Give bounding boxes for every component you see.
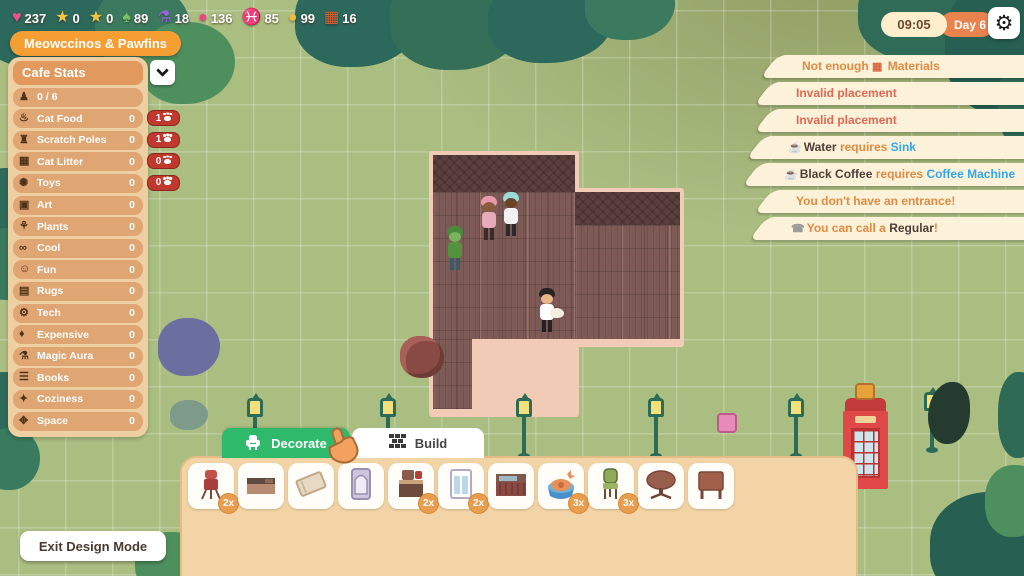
palette-item-square-table[interactable] — [688, 463, 734, 509]
character-green-customer[interactable] — [444, 226, 466, 272]
booth-sign — [855, 416, 876, 423]
notification-text-part: Materials — [884, 59, 939, 73]
cool-icon: ∞ — [19, 243, 34, 254]
stat-value: 0 — [129, 177, 135, 189]
chair-icon: ♟ — [19, 92, 34, 103]
item-count-badge: 2x — [418, 493, 439, 514]
lamppost[interactable] — [514, 398, 534, 459]
resource-coin: ●99 — [288, 10, 315, 26]
magic-aura-icon: ⚗ — [19, 351, 34, 362]
stat-row-scratch-poles[interactable]: ♜Scratch Poles01 — [13, 131, 143, 150]
resource-bar: ♥237★0★0♠89⚗18●136♓85●99▦16 — [12, 10, 357, 26]
resource-materials: ▦16 — [324, 10, 357, 26]
chevron-down-icon — [156, 64, 169, 77]
stat-value: 0 — [129, 415, 135, 427]
resource-value: 0 — [73, 11, 80, 26]
stat-label: Expensive — [37, 329, 89, 341]
stat-label: Cat Food — [37, 113, 83, 125]
stat-value: 0 — [129, 199, 135, 211]
resource-value: 99 — [301, 11, 315, 26]
notification-text: ☕Water requires Sink — [754, 136, 1024, 154]
palette-item-pet-bowl[interactable]: 3x — [538, 463, 584, 509]
lamp-base — [926, 447, 938, 453]
notification-text: Invalid placement — [762, 82, 1024, 100]
notification-text: You don't have an entrance! — [762, 190, 1024, 208]
palette-item-coffee-machine[interactable]: 2x — [388, 463, 434, 509]
stat-value: 0 — [129, 329, 135, 341]
stat-value: 0 — [129, 372, 135, 384]
art-icon: ▣ — [19, 200, 34, 211]
stat-row-fun[interactable]: ☺Fun0 — [13, 260, 143, 279]
torso — [504, 208, 518, 224]
stat-label: Scratch Poles — [37, 134, 106, 146]
resource-value: 89 — [134, 11, 148, 26]
space-icon: ✥ — [19, 416, 34, 427]
day-counter: Day 6 — [940, 12, 994, 37]
legs — [490, 228, 494, 240]
notification-text-part: Coffee Machine — [926, 167, 1015, 181]
palette-item-round-table[interactable] — [638, 463, 684, 509]
palette-item-cafe-chair[interactable]: 3x — [588, 463, 634, 509]
character-waiter[interactable] — [536, 288, 558, 334]
furniture-palette: 2x2x2x3x3x — [180, 456, 858, 576]
palette-item-window[interactable]: 2x — [438, 463, 484, 509]
resource-value: 136 — [211, 11, 233, 26]
stat-row-magic-aura[interactable]: ⚗Magic Aura0 — [13, 347, 143, 366]
star-icon: ★ — [55, 10, 69, 26]
lantern-icon — [648, 398, 664, 417]
legs — [512, 224, 516, 236]
expensive-icon: ♦ — [19, 329, 34, 340]
badge-value: 0 — [156, 156, 162, 167]
stat-label: 0 / 6 — [37, 91, 57, 103]
stat-value: 0 — [129, 113, 135, 125]
cafe-stats-title: Cafe Stats — [13, 61, 143, 85]
gear-icon: ⚙ — [995, 11, 1014, 36]
legs — [456, 258, 460, 270]
shop-sign — [855, 383, 875, 400]
booth-roof — [845, 398, 886, 412]
bar-counter-icon — [493, 466, 529, 507]
stat-value: 0 — [129, 350, 135, 362]
resource-leaf: ♠89 — [122, 10, 148, 26]
toys-icon: ✺ — [19, 178, 34, 189]
stat-row-cool[interactable]: ∞Cool0 — [13, 239, 143, 258]
stat-label: Coziness — [37, 393, 83, 405]
chair-icon — [245, 434, 263, 453]
palette-item-bar-counter[interactable] — [488, 463, 534, 509]
star-icon: ★ — [89, 10, 103, 26]
coffee-icon: ☕ — [784, 169, 798, 181]
notification-text: Not enough ▦ Materials — [768, 55, 1024, 73]
clock-time: 09:05 — [881, 12, 947, 37]
lamp-post — [522, 417, 526, 455]
stat-value: 0 — [129, 242, 135, 254]
pink-tile-marker — [717, 413, 737, 433]
paw-icon — [164, 137, 171, 142]
cat-litter-icon: ▦ — [19, 156, 34, 167]
resource-value: 18 — [175, 11, 189, 26]
notification-text-part: ! — [934, 221, 938, 235]
cafe-stats-panel: Cafe Stats ♟0 / 6♨Cat Food01♜Scratch Pol… — [8, 57, 148, 437]
heart-icon: ♥ — [12, 10, 22, 26]
palette-item-water-cooler[interactable]: 2x — [188, 463, 234, 509]
notification-text-part: Invalid placement — [796, 86, 897, 100]
lantern-icon — [516, 398, 532, 417]
stat-value: 0 — [129, 264, 135, 276]
notification-text-part: You don't have an entrance! — [796, 194, 955, 208]
lamppost[interactable] — [786, 398, 806, 459]
stat-label: Tech — [37, 307, 61, 319]
notification-text: ☎You can call a Regular! — [757, 217, 1024, 235]
badge-value: 1 — [156, 113, 162, 124]
round-table-icon — [643, 466, 679, 507]
tree — [985, 465, 1024, 537]
notification-not-enough-materials[interactable]: Not enough ▦ Materials — [768, 55, 1024, 78]
notification-text-part: Not enough — [802, 59, 872, 73]
coin-icon: ● — [288, 10, 298, 26]
badge-value: 0 — [156, 177, 162, 188]
stat-value: 0 — [129, 134, 135, 146]
paw-icon — [164, 180, 171, 185]
resource-gem: ●136 — [198, 10, 232, 26]
potion-icon: ⚗ — [157, 10, 171, 26]
notification-text: Invalid placement — [762, 109, 1024, 127]
call-icon: ☎ — [791, 223, 805, 235]
notification-no-entrance[interactable]: You don't have an entrance! — [762, 190, 1024, 213]
resource-heart: ♥237 — [12, 10, 46, 26]
resource-potion: ⚗18 — [157, 10, 189, 26]
notification-invalid-placement[interactable]: Invalid placement — [762, 109, 1024, 132]
tab-build-label: Build — [415, 436, 448, 451]
notification-call-regular[interactable]: ☎You can call a Regular! — [757, 217, 1024, 240]
stat-label: Fun — [37, 264, 56, 276]
legs — [484, 228, 488, 240]
legs — [548, 320, 552, 332]
stat-label: Toys — [37, 177, 61, 189]
cat-food-icon: ♨ — [19, 113, 34, 124]
stat-label: Space — [37, 415, 68, 427]
rug-icon — [293, 466, 329, 507]
carried-tray — [550, 308, 564, 318]
stat-row-plants[interactable]: ⚘Plants0 — [13, 217, 143, 236]
stat-label: Cool — [37, 242, 60, 254]
legs — [542, 320, 546, 332]
notification-text-part: Water — [804, 140, 837, 154]
stat-row-cat-food[interactable]: ♨Cat Food01 — [13, 109, 143, 128]
tab-build[interactable]: Build — [352, 428, 484, 458]
building-wall — [433, 155, 575, 192]
stat-label: Plants — [37, 221, 69, 233]
item-count-badge: 3x — [618, 493, 639, 514]
lamppost[interactable] — [646, 398, 666, 459]
requirement-badge: 0 — [147, 153, 180, 169]
resource-value: 237 — [25, 11, 47, 26]
stat-row-books[interactable]: ☰Books0 — [13, 368, 143, 387]
lantern-icon — [788, 398, 804, 417]
notification-coffee-requires-machine[interactable]: ☕Black Coffee requires Coffee Machine — [750, 163, 1024, 186]
notification-text-part: Sink — [891, 140, 916, 154]
rugs-icon: ▤ — [19, 286, 34, 297]
notification-text: ☕Black Coffee requires Coffee Machine — [750, 163, 1024, 181]
scratch-poles-icon: ♜ — [19, 135, 34, 146]
tech-icon: ⚙ — [19, 308, 34, 319]
bricks-icon — [389, 434, 407, 453]
stat-row-cat-litter[interactable]: ▦Cat Litter00 — [13, 152, 143, 171]
lantern-icon — [247, 398, 263, 417]
counter-icon — [243, 466, 279, 507]
gem-icon: ● — [198, 10, 208, 26]
badge-value: 1 — [156, 134, 162, 145]
character-customer[interactable] — [500, 192, 522, 238]
item-count-badge: 3x — [568, 493, 589, 514]
materials-icon: ▦ — [324, 10, 339, 26]
paw-icon — [164, 159, 171, 164]
stat-row-coziness[interactable]: ✦Coziness0 — [13, 390, 143, 409]
notification-water-requires-sink[interactable]: ☕Water requires Sink — [754, 136, 1024, 159]
stat-row-0-6[interactable]: ♟0 / 6 — [13, 88, 143, 107]
paw-icon — [164, 116, 171, 121]
resource-star: ★0 — [55, 10, 80, 26]
fun-icon: ☺ — [19, 264, 34, 275]
square-table-icon — [693, 466, 729, 507]
notification-text-part: Regular — [889, 221, 934, 235]
stat-row-space[interactable]: ✥Space0 — [13, 412, 143, 431]
torso — [482, 212, 496, 228]
notification-text-part: requires — [872, 167, 926, 181]
hand-cursor-icon — [318, 424, 364, 470]
resource-value: 0 — [106, 11, 113, 26]
cafe-name-label: Meowccinos & Pawfins — [10, 31, 181, 56]
head — [449, 232, 461, 242]
stat-row-tech[interactable]: ⚙Tech0 — [13, 304, 143, 323]
stat-value: 0 — [129, 156, 135, 168]
berry-bush — [400, 336, 444, 378]
stat-label: Rugs — [37, 285, 63, 297]
building-wall — [575, 192, 680, 225]
lamp-post — [654, 417, 658, 455]
books-icon: ☰ — [19, 372, 34, 383]
leaf-icon: ♠ — [122, 10, 131, 26]
stat-value: 0 — [129, 221, 135, 233]
legs — [450, 258, 454, 270]
item-count-badge: 2x — [218, 493, 239, 514]
requirement-badge: 1 — [147, 110, 180, 126]
drink-icon: ☕ — [788, 142, 802, 154]
resource-value: 85 — [264, 11, 278, 26]
stat-label: Art — [37, 199, 52, 211]
fish-icon: ♓ — [242, 10, 262, 26]
stat-value: 0 — [129, 393, 135, 405]
lamp-post — [794, 417, 798, 455]
resource-value: 16 — [342, 11, 356, 26]
notification-text-part: requires — [837, 140, 891, 154]
head — [541, 294, 553, 304]
stat-label: Books — [37, 372, 69, 384]
resource-star: ★0 — [89, 10, 114, 26]
torso — [448, 242, 462, 258]
legs — [506, 224, 510, 236]
head — [483, 202, 495, 212]
requirement-badge: 0 — [147, 175, 180, 191]
resource-fish: ♓85 — [242, 10, 279, 26]
head — [505, 198, 517, 208]
settings-button[interactable]: ⚙ — [988, 7, 1020, 39]
collapse-panel-button[interactable] — [150, 60, 175, 85]
exit-design-mode-button[interactable]: Exit Design Mode — [20, 531, 166, 561]
palette-item-counter[interactable] — [238, 463, 284, 509]
notification-invalid-placement[interactable]: Invalid placement — [762, 82, 1024, 105]
stat-row-art[interactable]: ▣Art0 — [13, 196, 143, 215]
tree — [998, 372, 1024, 458]
lantern-icon — [380, 398, 396, 417]
coziness-icon: ✦ — [19, 394, 34, 405]
materials-icon: ▦ — [872, 61, 882, 73]
notification-text-part: Black Coffee — [800, 167, 873, 181]
plants-icon: ⚘ — [19, 221, 34, 232]
stat-label: Magic Aura — [37, 350, 93, 362]
stat-row-expensive[interactable]: ♦Expensive0 — [13, 325, 143, 344]
stat-row-toys[interactable]: ✺Toys00 — [13, 174, 143, 193]
game-screen: ♥237★0★0♠89⚗18●136♓85●99▦16 Meowccinos &… — [0, 0, 1024, 576]
cafe-floor[interactable] — [575, 225, 680, 339]
stat-label: Cat Litter — [37, 156, 83, 168]
character-waitress[interactable] — [478, 196, 500, 242]
item-count-badge: 2x — [468, 493, 489, 514]
notification-text-part: Invalid placement — [796, 113, 897, 127]
stat-value: 0 — [129, 307, 135, 319]
stat-row-rugs[interactable]: ▤Rugs0 — [13, 282, 143, 301]
door-icon — [343, 466, 379, 507]
requirement-badge: 1 — [147, 132, 180, 148]
notification-text-part: You can call a — [807, 221, 889, 235]
stat-value: 0 — [129, 285, 135, 297]
